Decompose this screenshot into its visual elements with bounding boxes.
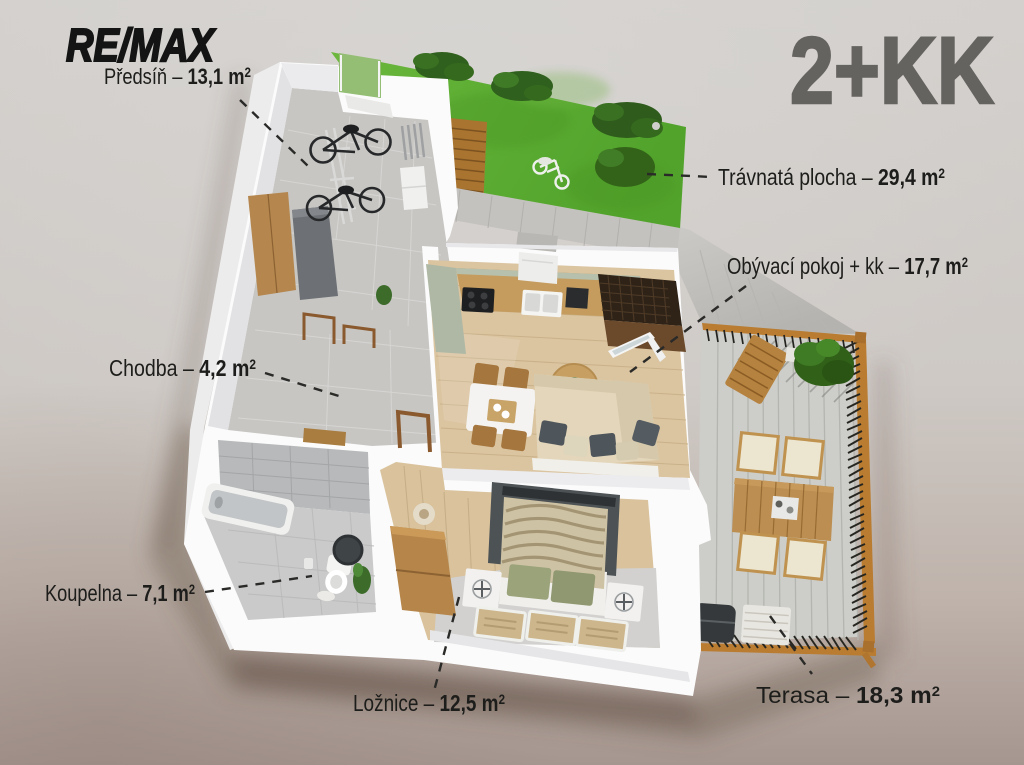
svg-text:Obývací pokoj + kk – 17,7 m2: Obývací pokoj + kk – 17,7 m2: [727, 253, 968, 279]
svg-text:Předsíň – 13,1 m2: Předsíň – 13,1 m2: [104, 64, 251, 89]
svg-text:Chodba – 4,2 m2: Chodba – 4,2 m2: [109, 355, 256, 381]
svg-text:Koupelna – 7,1 m2: Koupelna – 7,1 m2: [45, 580, 195, 606]
svg-text:Terasa – 18,3 m2: Terasa – 18,3 m2: [756, 682, 940, 708]
svg-text:Ložnice – 12,5 m2: Ložnice – 12,5 m2: [353, 690, 505, 716]
svg-text:2+KK: 2+KK: [790, 18, 994, 124]
svg-text:Trávnatá plocha – 29,4 m2: Trávnatá plocha – 29,4 m2: [718, 164, 945, 190]
